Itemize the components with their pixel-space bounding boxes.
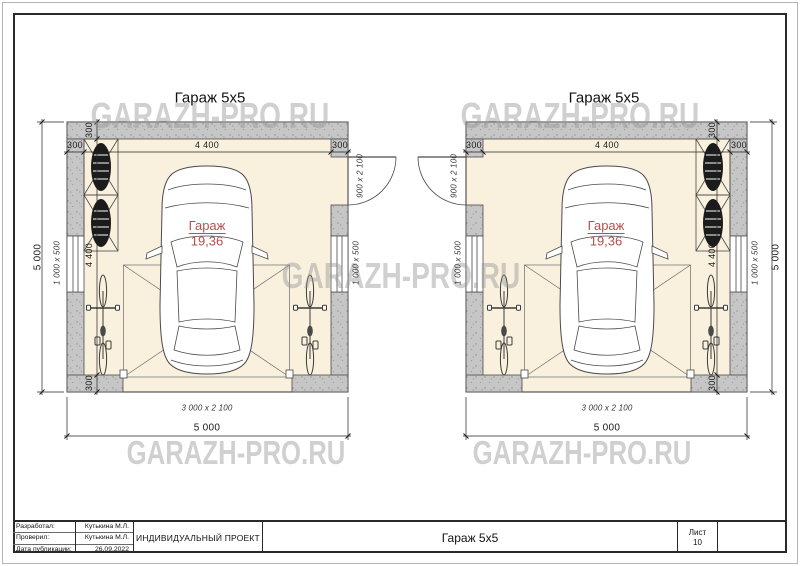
- title-block-row: Дата публикации: 26.09.2022: [13, 544, 133, 555]
- room-area: 19,36: [590, 234, 623, 249]
- dim-overall: 5 000: [771, 244, 782, 271]
- sheet-number: 10: [693, 538, 702, 548]
- gate-size-label: 3 000 x 2 100: [181, 404, 232, 413]
- dim-wall-thickness: 300: [84, 375, 94, 391]
- dim-wall-thickness: 300: [707, 375, 717, 391]
- dim-wall-thickness: 300: [67, 140, 83, 150]
- door-size-label: 900 x 2 100: [450, 154, 459, 198]
- watermark: GARAZH-PRO.RU: [127, 434, 346, 472]
- title-block-row: Разработал: Кутькина М.Л.: [13, 522, 133, 532]
- window-size-label: 1 000 x 500: [352, 241, 361, 285]
- project-type: ИНДИВИДУАЛЬНЫЙ ПРОЕКТ: [133, 522, 262, 553]
- dim-inner-width: 4 400: [595, 140, 619, 150]
- gate-size-label: 3 000 x 2 100: [581, 404, 632, 413]
- title-block: Разработал: Кутькина М.Л. Проверил: Куть…: [13, 520, 787, 553]
- dim-wall-thickness: 300: [84, 122, 94, 138]
- room-name: Гараж: [588, 218, 625, 234]
- dim-wall-thickness: 300: [332, 140, 348, 150]
- dim-wall-thickness: 300: [731, 140, 747, 150]
- date-value: 26.09.2022: [95, 545, 129, 556]
- title-block-empty-cell: [717, 522, 787, 553]
- plan-title: Гараж 5х5: [175, 90, 246, 107]
- sheet-label: Лист: [689, 528, 706, 538]
- dim-inner-width: 4 400: [195, 140, 219, 150]
- dim-overall: 5 000: [194, 423, 221, 434]
- dim-wall-thickness: 300: [466, 140, 482, 150]
- window-size-label: 1 000 x 500: [454, 241, 463, 285]
- dim-overall: 5 000: [33, 244, 44, 271]
- project-name: Гараж 5х5: [262, 522, 677, 553]
- checked-label: Проверил:: [16, 533, 49, 544]
- watermark: GARAZH-PRO.RU: [282, 255, 521, 297]
- developed-label: Разработал:: [16, 522, 55, 533]
- title-block-row: Проверил: Кутькина М.Л.: [13, 532, 133, 543]
- checked-value: Кутькина М.Л.: [85, 533, 129, 544]
- room-name: Гараж: [189, 218, 226, 234]
- dim-overall: 5 000: [594, 423, 621, 434]
- sheet-box: Лист 10: [677, 522, 717, 553]
- drawing-sheet: GARAZH-PRO.RU GARAZH-PRO.RU GARAZH-PRO.R…: [0, 0, 800, 566]
- room-area: 19,36: [191, 234, 224, 249]
- developed-value: Кутькина М.Л.: [85, 522, 129, 533]
- date-label: Дата публикации:: [16, 545, 72, 556]
- dim-wall-thickness: 300: [707, 122, 717, 138]
- dim-inner-depth: 4 400: [84, 243, 94, 267]
- title-block-signatures: Разработал: Кутькина М.Л. Проверил: Куть…: [13, 522, 133, 553]
- window-size-label: 1 000 x 500: [53, 241, 62, 285]
- door-size-label: 900 x 2 100: [356, 154, 365, 198]
- plan-title: Гараж 5х5: [569, 90, 640, 107]
- watermark: GARAZH-PRO.RU: [473, 434, 692, 472]
- window-size-label: 1 000 x 500: [751, 241, 760, 285]
- title-block-divider: [75, 522, 76, 553]
- dim-inner-depth: 4 400: [707, 243, 717, 267]
